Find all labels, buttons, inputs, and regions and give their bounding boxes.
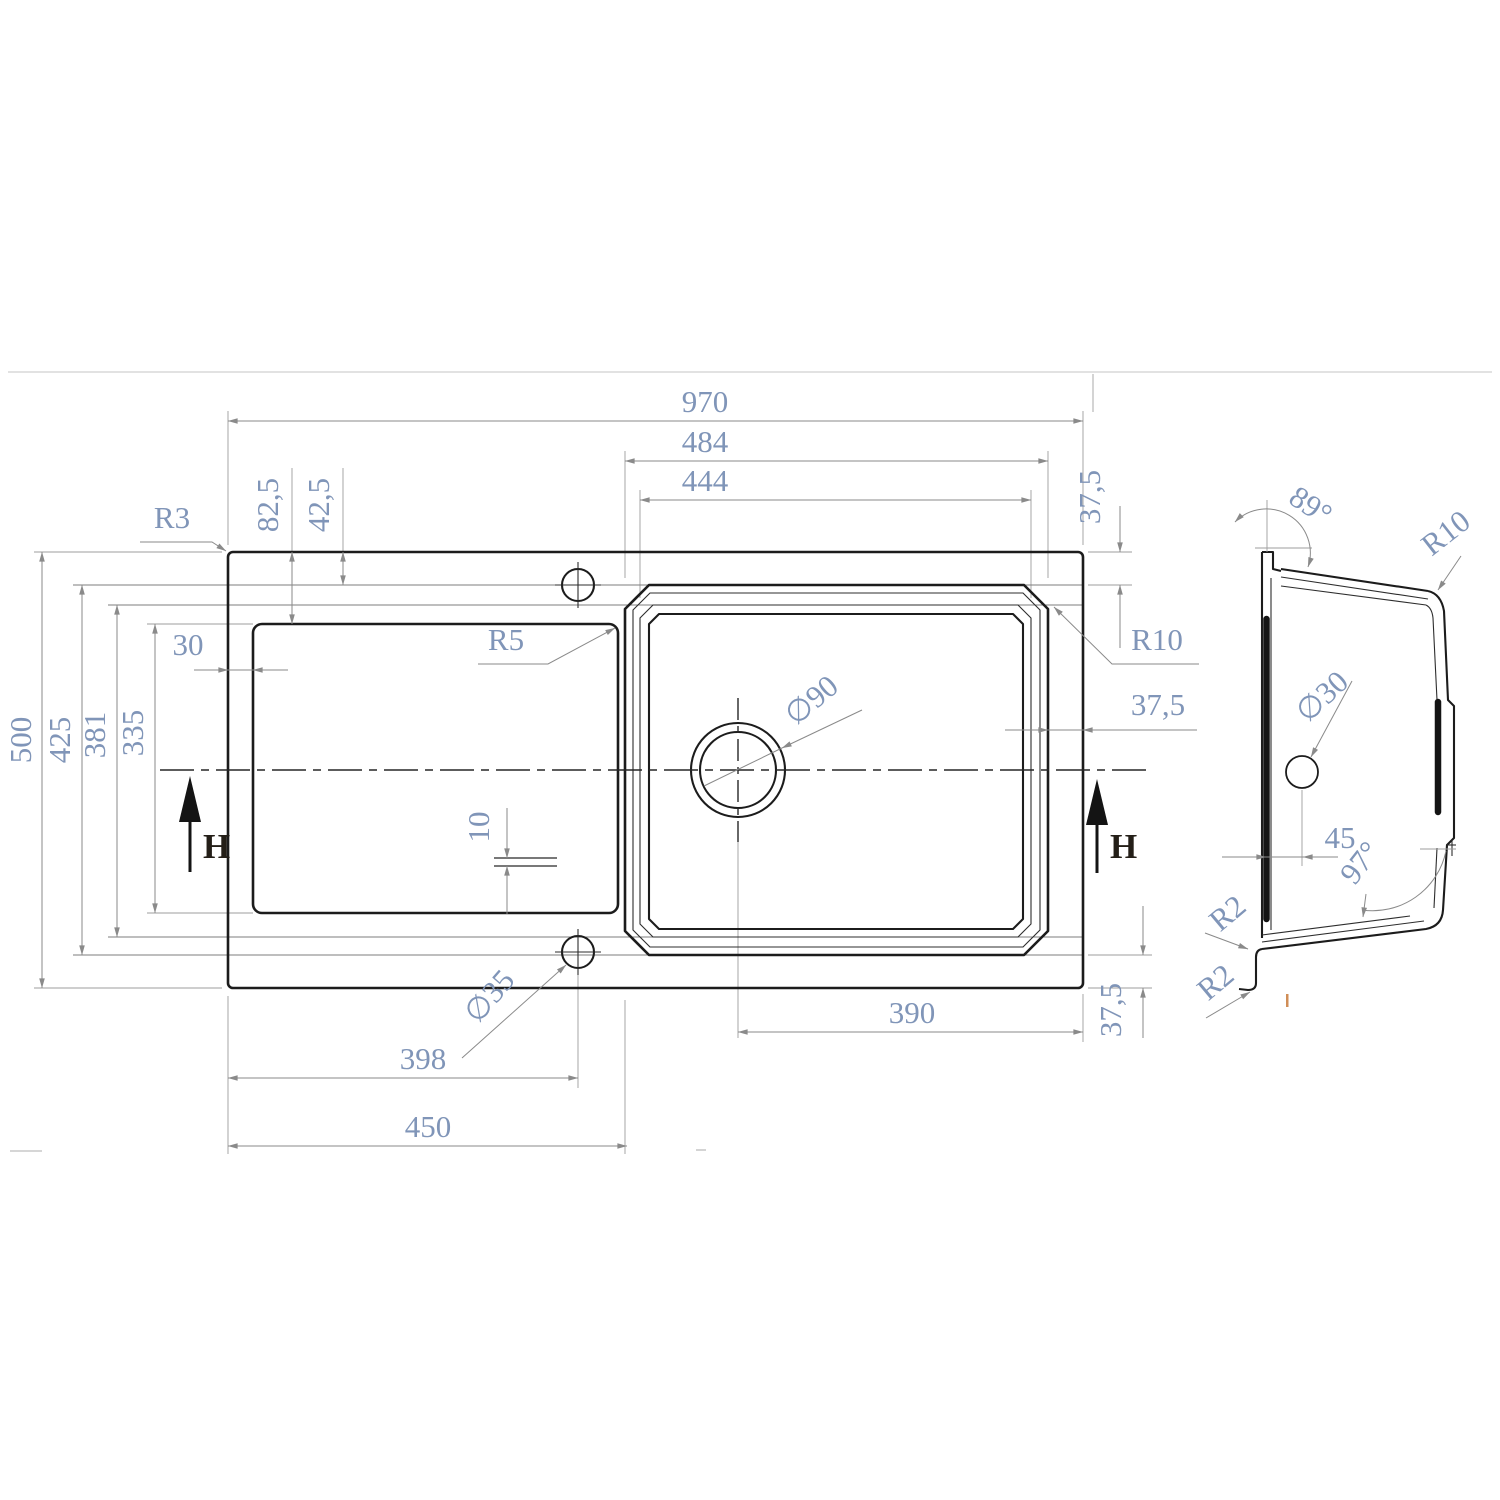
tap-hole-top	[555, 562, 601, 608]
dim-bowl-corner-radius: R10	[1131, 622, 1183, 657]
dim-drain-hole-diameter: ∅90	[778, 668, 845, 732]
top-view-dimension-lines	[42, 421, 1199, 1146]
top-view-centerlines	[160, 698, 1150, 842]
drawing-page: 970 484 444 500 425 381 335 30 82,5 42,5…	[0, 0, 1500, 1500]
top-view-dimension-texts: 970 484 444 500 425 381 335 30 82,5 42,5…	[3, 384, 1185, 1144]
dim-drainboard-width: 450	[405, 1109, 452, 1144]
dim-bottom-corner-radius: R2	[1202, 888, 1252, 938]
dim-bowl-inner-width: 444	[682, 463, 729, 498]
dim-edge-to-tap-axis: 42,5	[301, 478, 336, 532]
dim-rim-width-right: 37,5	[1131, 687, 1185, 722]
dim-top-corner-radius: R10	[1414, 503, 1476, 562]
section-view: 89° R10 ∅30 45 97° R2 R2	[1190, 479, 1477, 1018]
dim-drainboard-corner-radius: R5	[488, 622, 524, 657]
section-label-left: H	[203, 827, 230, 866]
section-marker-right: H	[1086, 779, 1137, 873]
top-view-extension-lines	[34, 411, 1152, 1154]
section-marker-left: H	[179, 776, 230, 872]
dim-drain-center-to-edge: 390	[889, 995, 936, 1030]
top-view: 970 484 444 500 425 381 335 30 82,5 42,5…	[3, 384, 1199, 1154]
dim-bowl-step-depth: 381	[77, 712, 112, 759]
section-view-outline	[1239, 552, 1456, 1007]
section-view-dimension-texts: 89° R10 ∅30 45 97° R2 R2	[1190, 479, 1477, 1007]
dim-bowl-rim-width: 484	[682, 424, 729, 459]
dim-overall-depth: 500	[3, 717, 38, 764]
technical-drawing-canvas: 970 484 444 500 425 381 335 30 82,5 42,5…	[0, 0, 1500, 1500]
artifact-tick	[1286, 994, 1289, 1007]
dim-lip-corner-radius: R2	[1190, 957, 1240, 1007]
dim-edge-to-drainboard: 82,5	[250, 478, 285, 532]
dim-groove-spacing: 10	[461, 812, 496, 843]
dim-outer-corner-radius: R3	[154, 500, 190, 535]
dim-rim-width-top: 37,5	[1072, 470, 1107, 524]
dim-overall-width: 970	[682, 384, 729, 419]
dim-bowl-rim-depth: 425	[42, 717, 77, 764]
dim-overflow-hole-diameter: ∅30	[1289, 664, 1355, 729]
dim-drainboard-inset: 30	[173, 627, 204, 662]
dim-drainboard-depth: 335	[115, 710, 150, 757]
section-label-right: H	[1110, 827, 1137, 866]
dim-tap-hole-diameter: ∅35	[457, 963, 521, 1030]
dim-rim-width-bottom: 37,5	[1093, 983, 1128, 1037]
dim-rim-wall-angle: 89°	[1283, 479, 1339, 532]
overflow-hole	[1286, 756, 1318, 788]
dim-tap-hole-offset: 398	[400, 1041, 447, 1076]
